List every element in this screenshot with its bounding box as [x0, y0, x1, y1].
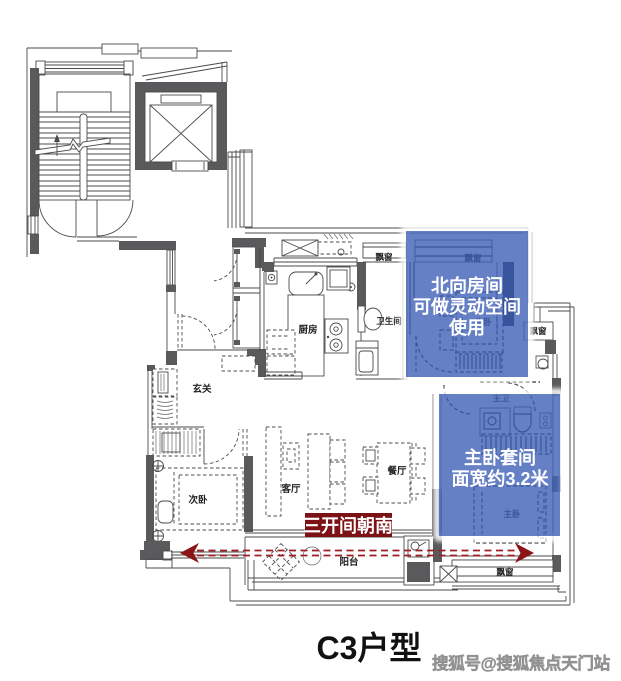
svg-text:厨房: 厨房 — [298, 324, 317, 336]
svg-text:飘窗: 飘窗 — [375, 252, 393, 262]
svg-text:面宽约3.2米: 面宽约3.2米 — [451, 468, 549, 489]
svg-text:主卧套间: 主卧套间 — [464, 447, 536, 468]
svg-text:玄关: 玄关 — [192, 383, 212, 395]
svg-text:使用: 使用 — [448, 318, 485, 338]
svg-text:三开间朝南: 三开间朝南 — [303, 515, 393, 536]
svg-text:飘窗: 飘窗 — [496, 567, 514, 577]
svg-text:次卧: 次卧 — [188, 494, 208, 506]
svg-text:阳台: 阳台 — [339, 556, 359, 568]
svg-text:客厅: 客厅 — [280, 483, 301, 495]
svg-text:搜狐号@搜狐焦点天门站: 搜狐号@搜狐焦点天门站 — [432, 653, 611, 673]
svg-text:可做灵动空间: 可做灵动空间 — [413, 296, 521, 317]
svg-text:餐厅: 餐厅 — [386, 465, 407, 477]
svg-text:C3户型: C3户型 — [317, 630, 422, 666]
svg-text:卫生间: 卫生间 — [376, 316, 402, 326]
svg-text:北向房间: 北向房间 — [431, 275, 503, 296]
